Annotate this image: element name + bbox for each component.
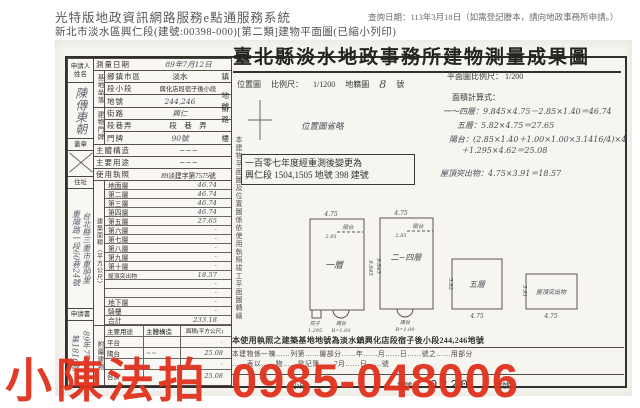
floor-value: · [155, 263, 231, 270]
page: 光特版地政資訊網路服務e點通服務系統 查詢日期：113年3月18日（如需登記謄本… [0, 0, 640, 408]
survey-date-label: 測量日期 [94, 59, 146, 70]
annex-header-row: 主要用途 主體構造 面積(平方公尺) [105, 326, 231, 337]
annex-structure-header: 主體構造 [143, 326, 181, 336]
p2-balcony-dim: 2.85 [394, 233, 406, 239]
usage-row: 主要用途 ~~~ [94, 157, 231, 169]
floor-total-label: 合計 [105, 315, 155, 325]
applicant-signature-text: 陳傳東朝 [73, 87, 87, 135]
address-line-2: 重陽路一段60巷24號 [70, 210, 80, 286]
district-value: 淡水 [145, 71, 215, 82]
area-formula-label: 面積計算式： [452, 92, 500, 103]
seal-stamp-box [68, 151, 93, 177]
floor-value: · [155, 299, 231, 306]
door-row-street: 街路 興仁 街路 [105, 108, 231, 120]
p3-side-dim: 5.82 [447, 278, 453, 291]
site-location-label: 基地坐落 [94, 71, 105, 107]
seal-cross-mark [68, 151, 93, 176]
site-location-block: 基地坐落 鄉鎮市區 淡水 鎮 段小段 興化店段宿子後小段 地號 [94, 71, 231, 108]
floor-value: 18.57 [155, 271, 231, 279]
floor-area-label: 建築面積（平方公尺） [94, 181, 105, 325]
site-row-section: 段小段 興化店段宿子後小段 [105, 83, 231, 95]
site-row-lot: 地號 244,246 地號 [105, 95, 231, 107]
formula-line-4: ＋1.295×4.62＝25.08 [461, 145, 547, 156]
floor-value: · [155, 308, 231, 315]
location-cross-mark [245, 98, 275, 147]
usage-label: 主要用途 [94, 157, 146, 168]
floor-value: 46.74 [155, 199, 231, 207]
structure-row: 主體構造 ~~~ [94, 145, 231, 157]
location-map-line: 位置圖 比例尺： 1/1200 地籍圖 8 號 [237, 78, 404, 91]
number-unit: 樓 [215, 133, 231, 144]
location-map-label: 位置圖 [237, 79, 261, 90]
document-title: 臺北縣淡水地政事務所建物測量成果圖 [233, 42, 621, 73]
floor-value: · [155, 281, 231, 288]
p1-arc-label: 陽台 [336, 320, 347, 327]
annex-use-header: 主要用途 [105, 326, 143, 336]
lot-label: 地號 [105, 96, 145, 107]
section-label: 段小段 [105, 83, 145, 94]
sheet-number: 8 [379, 78, 386, 91]
watermark-phone: 0985-048006 [231, 353, 519, 408]
location-scale-label: 比例尺： [271, 79, 303, 90]
formula-line-2: 五層：5.82×4.75＝27.65 [457, 120, 554, 131]
floor-value: · [155, 227, 231, 234]
remeasure-note-box: 一百零七年度經重測後變更為 興仁段 1504,1505 地號 398 建號 [241, 154, 415, 185]
door-plate-label: 建物門牌 [94, 108, 105, 144]
remeasure-note-line2: 興仁段 1504,1505 地號 398 建號 [245, 169, 411, 181]
p1-yard-label: 院子 [310, 320, 321, 327]
permit-value: 89淡建字第7575號 [146, 170, 231, 180]
survey-date-row: 測量日期 89年7月12日 [94, 59, 231, 71]
p2-label: 二~四層 [391, 253, 423, 262]
p3-bottom-dim: 4.75 [469, 313, 484, 320]
roof-formula: 屋頂突出物：4.75×3.91＝18.57 [440, 168, 561, 179]
floor-total-value: 233.18 [155, 316, 231, 324]
floor-value: 46.74 [155, 181, 231, 189]
annex-area-header: 面積(平方公尺) [181, 327, 231, 335]
floor-row: 屋頂突出物18.57 [105, 271, 231, 280]
p1-balcony-label: 陽台 [342, 224, 354, 231]
lane-value: 段 巷 弄 [145, 120, 231, 131]
address-handwritten: 台北縣三重市重明里 重陽路一段60巷24號 [68, 189, 93, 309]
cadastral-map-label: 地籍圖 [345, 79, 369, 90]
p1-balcony-dim: 2.85 [324, 234, 336, 240]
lane-label: 段巷弄 [105, 120, 145, 131]
p4-bottom-dim: 4.75 [543, 313, 558, 320]
address-line-1: 台北縣三重市重明里 [81, 210, 91, 286]
plan-scale: 平面圖比例尺： 1/200 [447, 71, 523, 82]
sheet-number-unit: 號 [396, 79, 404, 90]
p1-side-dim: 9.845 [367, 260, 373, 276]
floor-row: · [105, 280, 231, 289]
floor-value: · [155, 254, 231, 261]
location-omitted-note: 位置圖省略 [301, 120, 344, 132]
p3-label: 五層 [469, 280, 486, 289]
document-subtitle: 新北市淡水區興仁段(建號:00398-000)[第二類]建物平面圖(已縮小列印) [55, 24, 396, 39]
p1-label: 一層 [325, 260, 344, 271]
p2-top-dim: 4.75 [393, 210, 408, 217]
floor-value: · [155, 245, 231, 252]
p2-balcony-label: 陽台 [412, 223, 424, 230]
applicant-name-label: 申請人姓名 [68, 59, 93, 83]
address-text: 台北縣三重市重明里 重陽路一段60巷24號 [69, 208, 92, 288]
form-main-column: 測量日期 89年7月12日 基地坐落 鄉鎮市區 淡水 鎮 段小段 興化店段宿子後… [94, 59, 231, 385]
p1-top-dim: 4.75 [323, 211, 338, 218]
number-value: 90號 [145, 133, 215, 144]
usage-value: ~~~ [146, 158, 231, 167]
floor-label: 屋頂突出物 [105, 271, 155, 280]
p1-yard-dim: 1.295 [308, 328, 322, 334]
formula-line-3: 陽台：(2.85×1.40＋1.00×1.00×3.1416/4)×4 [449, 134, 626, 145]
plan-scale-label: 平面圖比例尺： [447, 72, 503, 81]
location-scale-value: 1/1200 [313, 80, 335, 89]
lot-value: 244,246 [145, 97, 215, 106]
floor-value: 46.74 [155, 208, 231, 216]
seal-label: 蓋章 [68, 139, 93, 151]
p1-arc-dim: R=1.00 [330, 328, 351, 334]
applicant-signature: 陳傳東朝 [68, 83, 93, 139]
door-plate-block: 建物門牌 街路 興仁 街路 段巷弄 段 巷 弄 門牌 [94, 108, 231, 145]
floor-total-row: 合計233.18 [105, 316, 231, 325]
p2-side-dim: 9.845 [375, 258, 381, 274]
query-date: 查詢日期：113年3月18日（如需登記謄本，請向地政事務所申請。） [368, 11, 618, 23]
structure-value: ~~~ [146, 146, 231, 155]
formula-line-1: 一～四層：9.845×4.75－2.85×1.40＝46.74 [443, 106, 612, 117]
site-row-district: 鄉鎮市區 淡水 鎮 [105, 71, 231, 83]
auction-watermark: 小陳法拍 0985-048006 [5, 342, 519, 408]
floor-plan-sketches: 4.75 陽台 2.85 9.845 一層 院子 1.295 陽台 R=1.00… [301, 208, 629, 339]
floor-value: · [155, 236, 231, 243]
door-row-lane: 段巷弄 段 巷 弄 [105, 120, 231, 132]
watermark-text: 小陳法拍 [5, 342, 209, 408]
permit-label: 使用執照 [94, 169, 146, 180]
door-row-number: 門牌 90號 樓 [105, 132, 231, 144]
survey-date-value: 89年7月12日 [146, 59, 231, 70]
p2-arc-label: 陽台 [400, 319, 411, 326]
p4-label: 屋頂突出物 [536, 288, 567, 296]
floor-value: · [155, 290, 231, 297]
street-label: 街路 [105, 108, 145, 119]
remeasure-note-line1: 一百零七年度經重測後變更為 [245, 157, 411, 169]
floor-label: 第十層 [105, 261, 155, 271]
floor-value: 46.74 [155, 190, 231, 198]
p4-side-dim: 3.91 [521, 285, 527, 297]
district-unit: 鎮 [215, 71, 231, 82]
floor-area-block: 建築面積（平方公尺） 地面層46.74 第二層46.74 第三層46.74 第四… [94, 181, 231, 326]
number-label: 門牌 [105, 133, 145, 144]
address-label: 住址 [68, 177, 93, 189]
p2-arc-dim: R=1.00 [394, 327, 415, 333]
structure-label: 主體構造 [94, 145, 146, 156]
application-label: 申請書 [68, 309, 93, 321]
form-left-column: 申請人姓名 陳傳東朝 蓋章 住址 台北縣三重市重明里 重陽路一段60巷24號 申… [68, 59, 94, 385]
survey-form-table: 申請人姓名 陳傳東朝 蓋章 住址 台北縣三重市重明里 重陽路一段60巷24號 申… [67, 58, 232, 386]
plan-scale-value: 1/200 [505, 72, 523, 81]
district-label: 鄉鎮市區 [105, 71, 145, 82]
street-value: 興仁 [145, 108, 215, 119]
floor-value: 27.65 [155, 217, 231, 225]
